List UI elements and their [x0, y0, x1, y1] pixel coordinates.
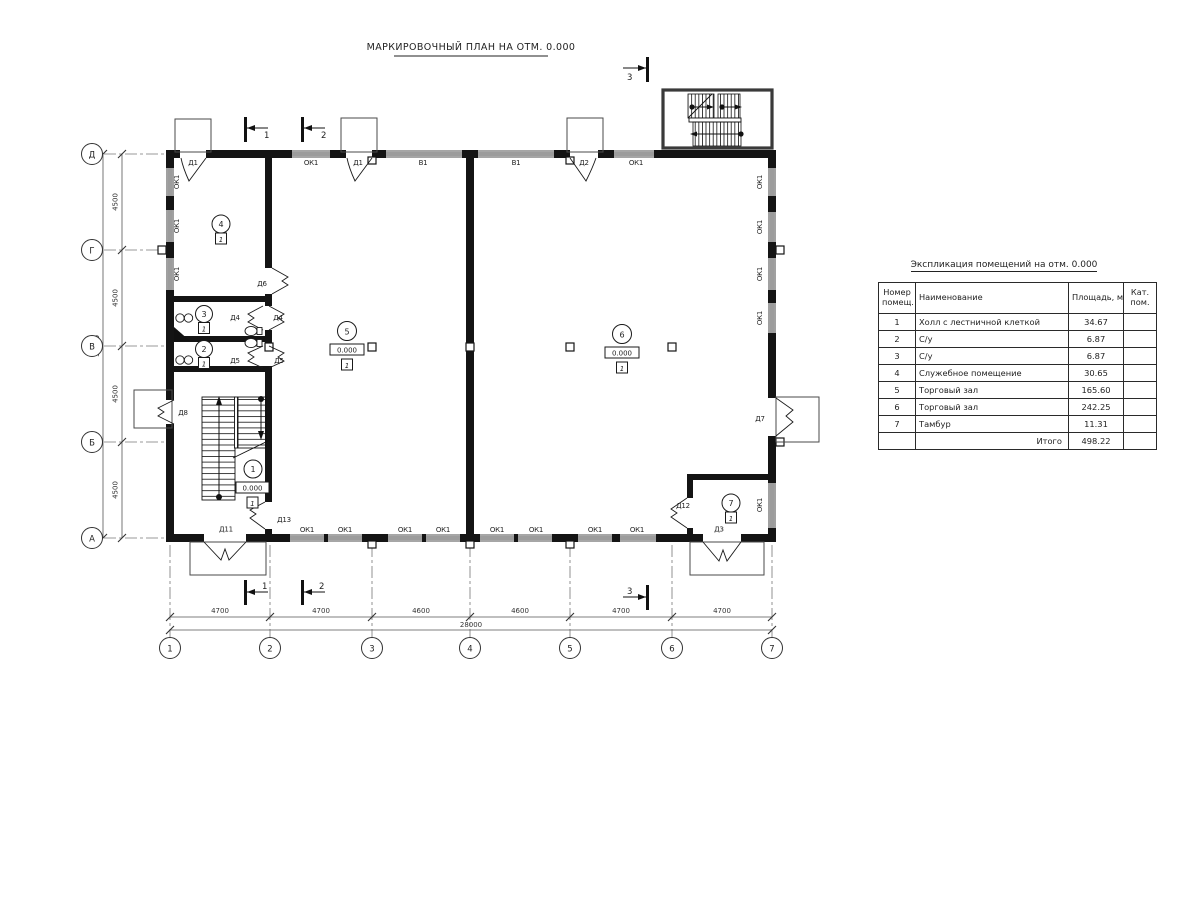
- dim-4500-c: 4500: [112, 385, 120, 403]
- row-label-d: Д: [89, 150, 96, 160]
- dim-4700-c: 4700: [612, 607, 630, 615]
- dim-4500-b: 4500: [112, 289, 120, 307]
- window-label: ОК1: [173, 219, 181, 233]
- row-number: 7: [879, 416, 916, 433]
- sink-icon: [184, 314, 192, 322]
- section-2-top: 2: [321, 131, 326, 141]
- dim-4600-a: 4600: [412, 607, 430, 615]
- drawing-sheet: МАРКИРОВОЧНЫЙ ПЛАН НА ОТМ. 0.000 4500 45…: [0, 0, 1200, 900]
- row-name: Тамбур: [916, 416, 1069, 433]
- total-empty: [879, 433, 916, 450]
- door-label-d12: Д12: [676, 502, 690, 510]
- row-category: [1124, 314, 1157, 331]
- door-label-d6: Д6: [257, 280, 267, 288]
- row-name: Служебное помещение: [916, 365, 1069, 382]
- grid-lines: [104, 154, 772, 637]
- window-label: ОК1: [529, 526, 543, 534]
- row-label-b: Б: [89, 438, 95, 448]
- window-label-v1b: В1: [512, 159, 521, 167]
- row-number: 1: [879, 314, 916, 331]
- row-number: 6: [879, 399, 916, 416]
- schedule-title-text: Экспликация помещений на отм. 0.000: [911, 260, 1098, 272]
- door-label-d13: Д13: [277, 516, 291, 524]
- window-label: ОК1: [756, 311, 764, 325]
- toilet-icon: [245, 338, 257, 347]
- header-name: Наименование: [916, 283, 1069, 314]
- room-3-floor: 1: [202, 325, 206, 333]
- dim-4700-a: 4700: [211, 607, 229, 615]
- room-7-number: 7: [728, 499, 733, 508]
- toilet-tank: [257, 340, 262, 347]
- window-label: ОК1: [300, 526, 314, 534]
- row-area: 30.65: [1069, 365, 1124, 382]
- door-label-d5-left: Д5: [230, 357, 240, 365]
- room-5-elevation: 0.000: [337, 347, 357, 355]
- row-category: [1124, 433, 1157, 450]
- table-row: 3 С/у 6.87: [879, 348, 1157, 365]
- exterior-staircase: [663, 90, 772, 148]
- window-label: ОК1: [398, 526, 412, 534]
- col-label-2: 2: [267, 644, 272, 654]
- room-1-floor: 1: [250, 500, 254, 508]
- window-label: ОК1: [756, 175, 764, 189]
- table-row: 2 С/у 6.87: [879, 331, 1157, 348]
- door-label-d1b: Д1: [353, 159, 363, 167]
- header-category: Кат. пом.: [1124, 283, 1157, 314]
- row-number: 4: [879, 365, 916, 382]
- axis-bubble-labels: Д Г В Б А 1 2 3 4 5 6 7: [89, 150, 775, 654]
- toilet-icon: [245, 326, 257, 335]
- dim-4700-b: 4700: [312, 607, 330, 615]
- row-category: [1124, 382, 1157, 399]
- row-name: Торговый зал: [916, 399, 1069, 416]
- row-area: 165.60: [1069, 382, 1124, 399]
- room-schedule: Экспликация помещений на отм. 0.000 Номе…: [878, 260, 1130, 450]
- row-name: Холл с лестничной клеткой: [916, 314, 1069, 331]
- total-label: Итого: [916, 433, 1069, 450]
- door-label-d11: Д11: [219, 526, 233, 534]
- row-label-g: Г: [89, 246, 94, 256]
- row-name: С/у: [916, 348, 1069, 365]
- row-number: 2: [879, 331, 916, 348]
- table-row: 4 Служебное помещение 30.65: [879, 365, 1157, 382]
- dim-4700-d: 4700: [713, 607, 731, 615]
- row-area: 242.25: [1069, 399, 1124, 416]
- sink-icon: [176, 356, 184, 364]
- window-label: ОК1: [436, 526, 450, 534]
- col-label-5: 5: [567, 644, 572, 654]
- row-name: Торговый зал: [916, 382, 1069, 399]
- window-label-v1a: В1: [419, 159, 428, 167]
- porches: [134, 118, 819, 575]
- row-label-a: А: [89, 534, 95, 544]
- room-7-floor: 1: [729, 515, 733, 523]
- row-category: [1124, 365, 1157, 382]
- window-label: ОК1: [756, 267, 764, 281]
- table-row: 5 Торговый зал 165.60: [879, 382, 1157, 399]
- sink-icon: [176, 314, 184, 322]
- door-label-d8: Д8: [178, 409, 188, 417]
- window-label: ОК1: [588, 526, 602, 534]
- toilet-tank: [257, 328, 262, 335]
- row-area: 6.87: [1069, 348, 1124, 365]
- schedule-title: Экспликация помещений на отм. 0.000: [878, 260, 1130, 270]
- room-4-number: 4: [218, 220, 223, 229]
- col-label-7: 7: [769, 644, 774, 654]
- schedule-total-row: Итого 498.22: [879, 433, 1157, 450]
- header-area: Площадь, м2: [1069, 283, 1124, 314]
- door-label-d4-left: Д4: [230, 314, 240, 322]
- plan-title-text: МАРКИРОВОЧНЫЙ ПЛАН НА ОТМ. 0.000: [367, 41, 576, 53]
- row-label-v: В: [89, 342, 95, 352]
- door-label-d2: Д2: [579, 159, 589, 167]
- col-label-3: 3: [369, 644, 374, 654]
- door-label-d7: Д7: [755, 415, 765, 423]
- schedule-table: Номер помещ. Наименование Площадь, м2 Ка…: [878, 282, 1157, 450]
- col-label-6: 6: [669, 644, 674, 654]
- total-value: 498.22: [1069, 433, 1124, 450]
- col-label-1: 1: [167, 644, 172, 654]
- col-label-4: 4: [467, 644, 472, 654]
- bottom-dimensions: 4700 4700 4600 4600 4700 4700 28000: [166, 607, 776, 634]
- section-3-top: 3: [627, 73, 632, 83]
- dim-4500-d: 4500: [112, 481, 120, 499]
- row-area: 6.87: [1069, 331, 1124, 348]
- section-1-bottom: 1: [262, 582, 267, 592]
- door-label-d4-right: Д4: [273, 314, 283, 322]
- room-1-elevation: 0.000: [242, 485, 262, 493]
- window-label: ОК1: [490, 526, 504, 534]
- row-category: [1124, 331, 1157, 348]
- dim-4600-b: 4600: [511, 607, 529, 615]
- window-label: ОК1: [756, 220, 764, 234]
- row-category: [1124, 348, 1157, 365]
- window-label: ОК1: [304, 159, 318, 167]
- room-1-number: 1: [250, 465, 255, 474]
- table-row: 1 Холл с лестничной клеткой 34.67: [879, 314, 1157, 331]
- table-row: 7 Тамбур 11.31: [879, 416, 1157, 433]
- row-number: 5: [879, 382, 916, 399]
- row-category: [1124, 416, 1157, 433]
- plan-title: МАРКИРОВОЧНЫЙ ПЛАН НА ОТМ. 0.000: [367, 41, 576, 56]
- room-4-floor: 1: [219, 236, 223, 244]
- window-label: ОК1: [630, 526, 644, 534]
- dim-28000: 28000: [460, 621, 482, 629]
- row-number: 3: [879, 348, 916, 365]
- room-6-floor: 1: [620, 365, 624, 373]
- schedule-header-row: Номер помещ. Наименование Площадь, м2 Ка…: [879, 283, 1157, 314]
- window-label: ОК1: [173, 267, 181, 281]
- row-name: С/у: [916, 331, 1069, 348]
- room-6-elevation: 0.000: [612, 350, 632, 358]
- door-label-d3: Д3: [714, 526, 724, 534]
- header-number: Номер помещ.: [879, 283, 916, 314]
- window-label: ОК1: [173, 175, 181, 189]
- room-5-floor: 1: [345, 362, 349, 370]
- axis-bubbles: [82, 144, 783, 659]
- row-category: [1124, 399, 1157, 416]
- room-5-number: 5: [344, 327, 349, 336]
- room-6-number: 6: [619, 330, 624, 339]
- dim-4500-a: 4500: [112, 193, 120, 211]
- door-label-d1a: Д1: [188, 159, 198, 167]
- table-row: 6 Торговый зал 242.25: [879, 399, 1157, 416]
- window-label: ОК1: [756, 498, 764, 512]
- sink-icon: [184, 356, 192, 364]
- window-label: ОК1: [629, 159, 643, 167]
- door-label-d5-right: Д5: [274, 357, 284, 365]
- room-3-number: 3: [201, 310, 206, 319]
- section-1-top: 1: [264, 131, 269, 141]
- row-area: 34.67: [1069, 314, 1124, 331]
- section-2-bottom: 2: [319, 582, 324, 592]
- row-area: 11.31: [1069, 416, 1124, 433]
- room-2-floor: 1: [202, 360, 206, 368]
- section-3-bottom: 3: [627, 587, 632, 597]
- room-2-number: 2: [201, 345, 206, 354]
- floor-plan-svg: МАРКИРОВОЧНЫЙ ПЛАН НА ОТМ. 0.000 4500 45…: [0, 0, 1200, 900]
- window-label: ОК1: [338, 526, 352, 534]
